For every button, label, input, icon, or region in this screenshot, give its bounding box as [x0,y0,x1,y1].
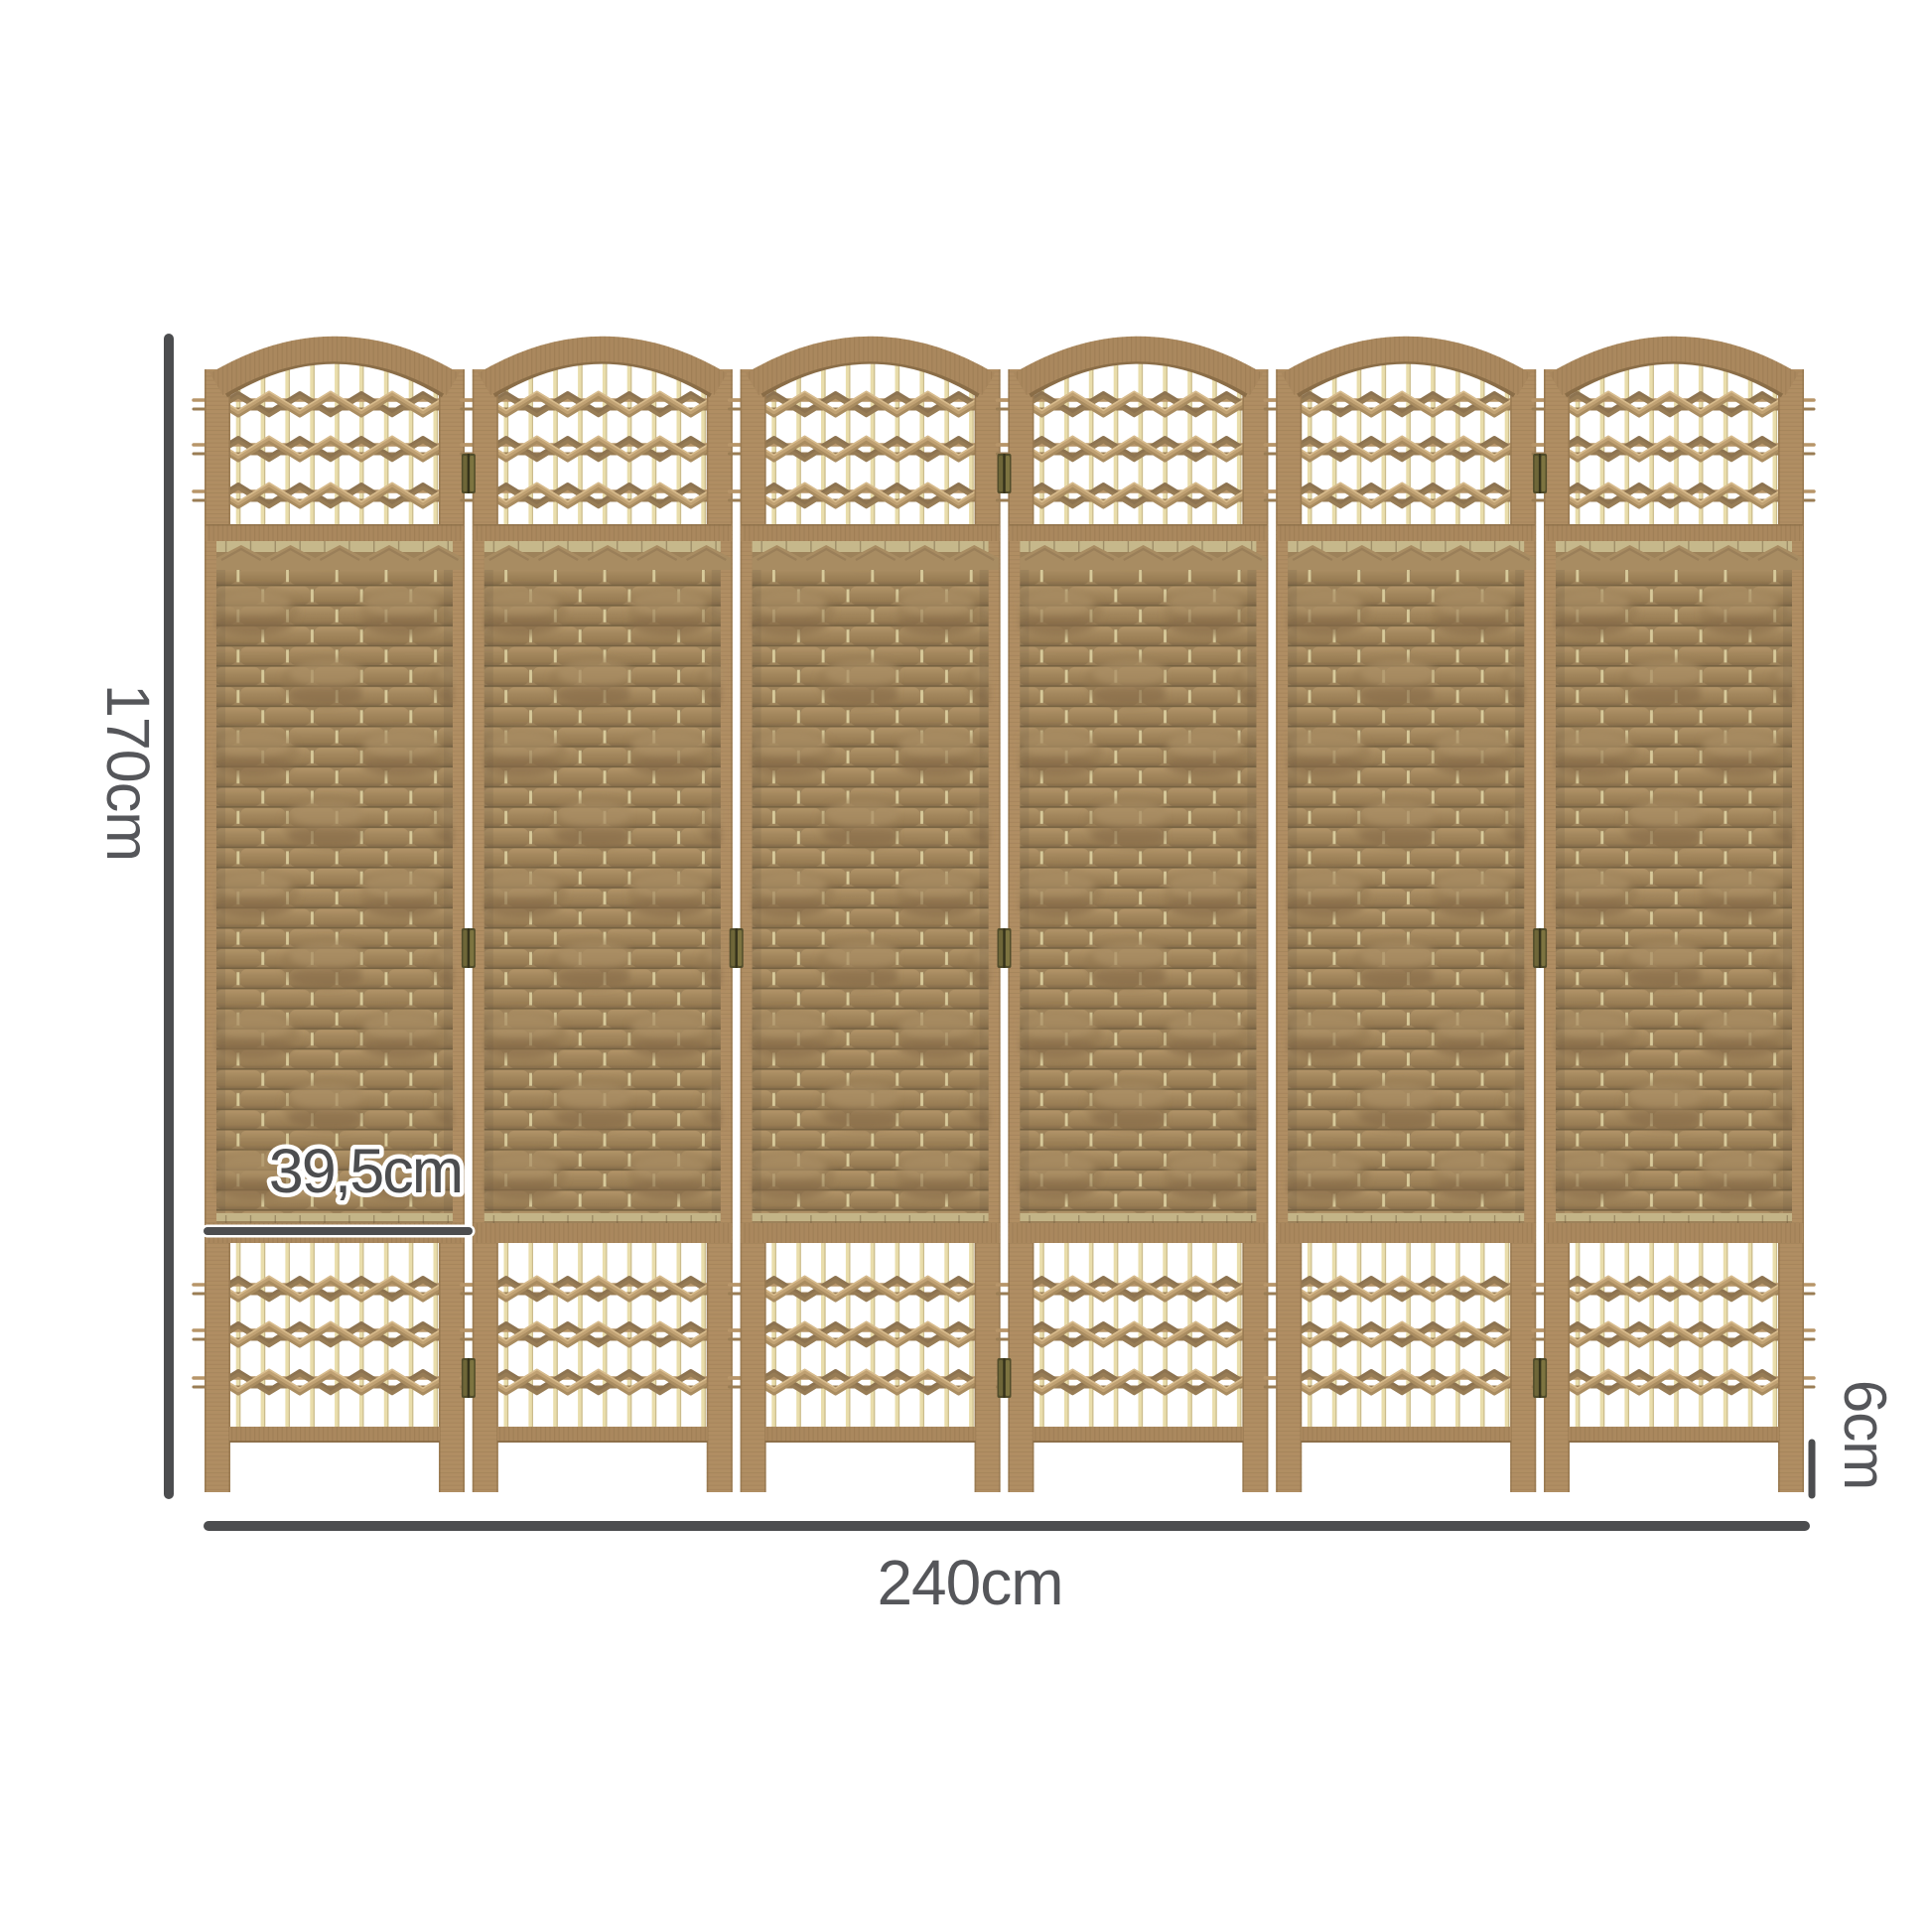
svg-text:240cm: 240cm [877,1547,1062,1618]
svg-text:6cm: 6cm [1832,1380,1898,1489]
svg-text:39,5cm: 39,5cm [269,1137,463,1206]
svg-text:170cm: 170cm [94,684,162,861]
